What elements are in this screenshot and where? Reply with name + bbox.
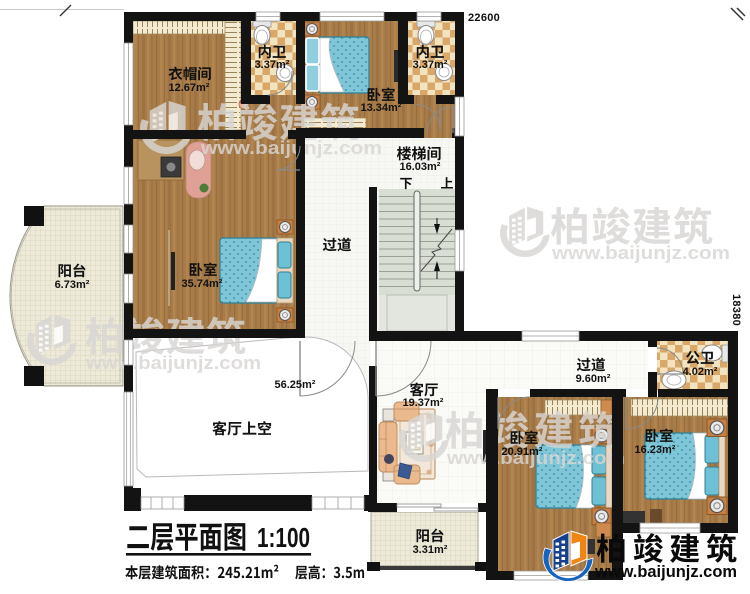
svg-text:16.03m²: 16.03m² bbox=[400, 161, 441, 173]
svg-text:3.37m²: 3.37m² bbox=[255, 59, 290, 71]
svg-text:www.baijunjz.com: www.baijunjz.com bbox=[594, 563, 737, 581]
svg-text:3.37m²: 3.37m² bbox=[413, 59, 448, 71]
svg-text:www.baijunjz.com: www.baijunjz.com bbox=[85, 353, 261, 373]
svg-text:16.23m²: 16.23m² bbox=[635, 444, 676, 456]
svg-text:12.67m²: 12.67m² bbox=[169, 82, 210, 94]
svg-text:www.baijunjz.com: www.baijunjz.com bbox=[200, 138, 382, 158]
svg-text:9.60m²: 9.60m² bbox=[576, 373, 611, 385]
svg-text:www.baijunjz.com: www.baijunjz.com bbox=[551, 243, 730, 263]
svg-text:4.02m²: 4.02m² bbox=[683, 366, 718, 378]
svg-text:1:100: 1:100 bbox=[257, 522, 310, 553]
svg-text:35.74m²: 35.74m² bbox=[182, 278, 223, 290]
svg-text:19.37m²: 19.37m² bbox=[403, 397, 444, 409]
svg-text:3.31m²: 3.31m² bbox=[413, 544, 448, 556]
svg-text:18380: 18380 bbox=[730, 294, 742, 326]
svg-text:13.34m²: 13.34m² bbox=[361, 102, 402, 114]
svg-text:20.91m²: 20.91m² bbox=[502, 446, 543, 458]
svg-text:22600: 22600 bbox=[468, 12, 500, 24]
svg-text:56.25m²: 56.25m² bbox=[275, 379, 316, 391]
svg-text:6.73m²: 6.73m² bbox=[55, 279, 90, 291]
